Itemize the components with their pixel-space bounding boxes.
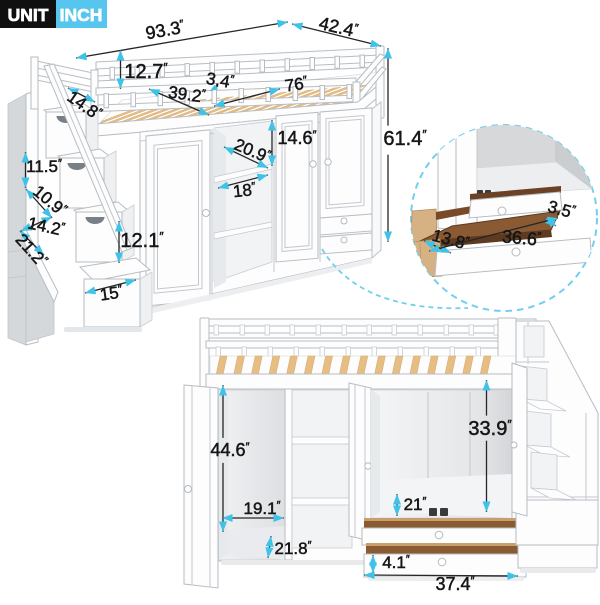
- svg-text:INCH: INCH: [60, 5, 103, 25]
- svg-text:37.4″: 37.4″: [436, 574, 475, 594]
- svg-text:44.6″: 44.6″: [211, 440, 250, 460]
- svg-text:61.4″: 61.4″: [383, 128, 427, 150]
- svg-text:4.1″: 4.1″: [382, 553, 410, 572]
- svg-text:14.6″: 14.6″: [278, 128, 317, 148]
- svg-text:33.9″: 33.9″: [468, 418, 512, 440]
- svg-text:21.8″: 21.8″: [275, 539, 312, 558]
- svg-text:19.1″: 19.1″: [244, 499, 281, 518]
- svg-text:11.5″: 11.5″: [26, 157, 62, 176]
- svg-text:UNIT: UNIT: [8, 5, 49, 25]
- svg-text:12.1″: 12.1″: [120, 230, 164, 252]
- svg-text:12.7″: 12.7″: [124, 61, 168, 83]
- svg-text:36.6″: 36.6″: [501, 226, 542, 249]
